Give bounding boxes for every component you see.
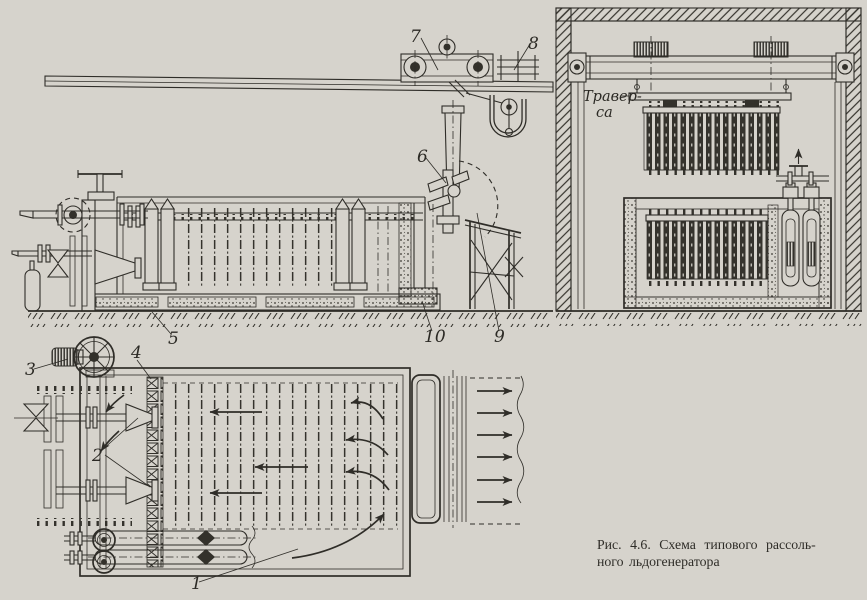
callout-5-label: 5 — [168, 329, 179, 349]
scanned-figure-page: 7 8 6 5 10 9 — [0, 0, 867, 600]
callout-6-label: 6 — [417, 147, 428, 167]
traverse-label-line2: са — [596, 105, 613, 121]
callout-2-label: 2 — [91, 446, 103, 466]
ground-side — [28, 311, 553, 327]
caption-line-1: Рис. 4.6. Схема типового рассоль- — [597, 536, 865, 553]
callout-7-label: 7 — [410, 27, 421, 47]
figure-caption: Рис. 4.6. Схема типового рассоль- ного л… — [597, 536, 865, 570]
evaporator-coil-strip — [147, 377, 163, 567]
traverse-label-line1: Травер- — [583, 89, 642, 105]
callout-4-label: 4 — [130, 343, 142, 363]
callout-9-label: 9 — [494, 327, 505, 347]
caption-line-2: ного льдогенератора — [597, 553, 865, 570]
submerged-can-group — [646, 209, 768, 286]
ice-can-rows-plan — [168, 384, 398, 528]
callout-3-label: 3 — [25, 360, 36, 380]
callout-10-label: 10 — [424, 327, 446, 347]
technical-drawing: 7 8 6 5 10 9 — [0, 0, 867, 600]
callout-1-label: 1 — [191, 574, 202, 594]
hanging-can-group — [643, 101, 780, 177]
ground-end — [556, 311, 862, 326]
callout-8-label: 8 — [528, 34, 539, 54]
